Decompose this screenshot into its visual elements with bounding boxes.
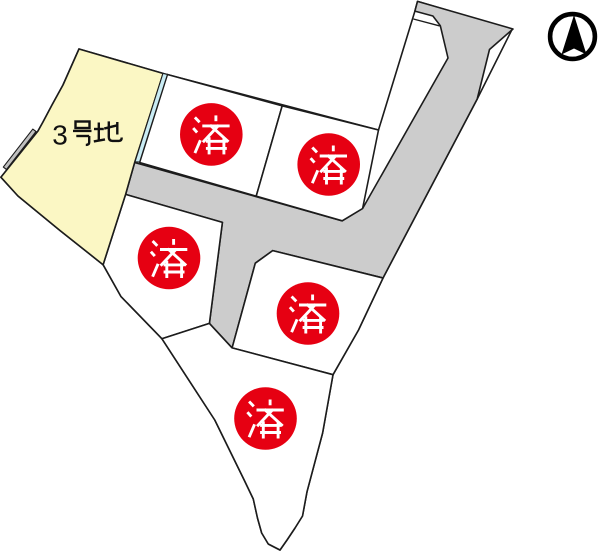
svg-text:3: 3 [52, 120, 68, 151]
